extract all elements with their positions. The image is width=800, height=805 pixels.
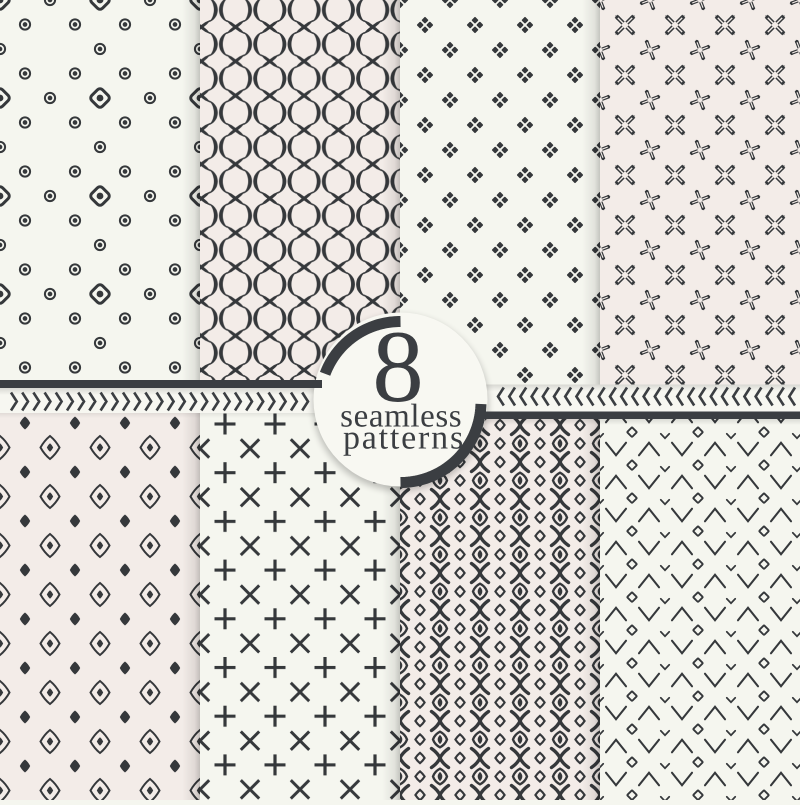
svg-text:patterns: patterns xyxy=(343,420,465,457)
